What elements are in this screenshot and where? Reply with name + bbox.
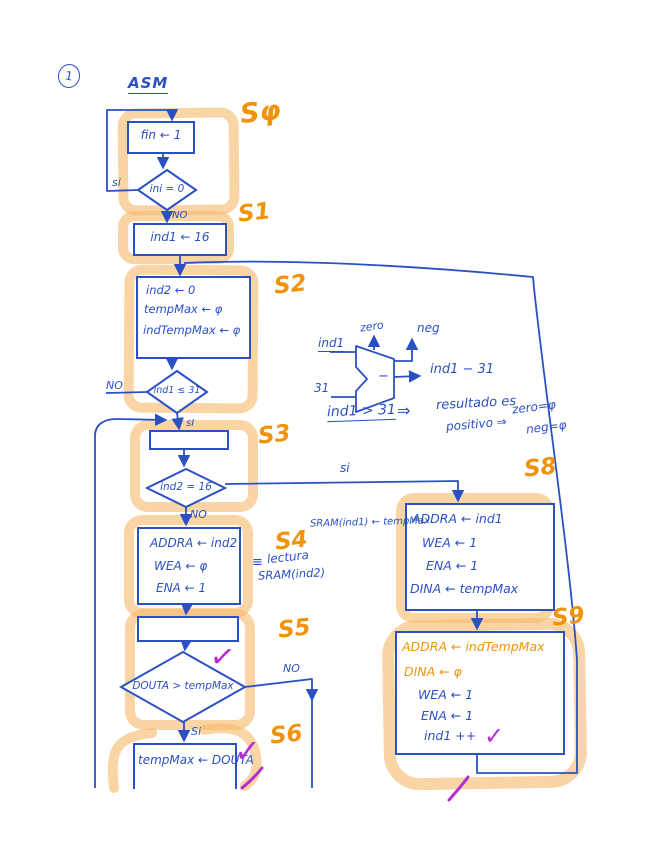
scanned-asm-flowchart-page: 1 ASM fin ← 1 ini = 0 ind1 ← 16 ind2 ← 0…: [0, 0, 648, 848]
s2-line-2: tempMax ← φ: [144, 303, 222, 316]
state-label-s9: S9: [551, 602, 586, 631]
edge-s5-to-doutacond: [185, 641, 186, 649]
state-label-s6: S6: [269, 720, 304, 749]
label-douta-si: Si: [191, 726, 201, 738]
page-title: ASM: [128, 75, 168, 94]
edge-s4-to-s5: [186, 604, 187, 613]
s3-condition-text: ind2 = 16: [147, 482, 225, 494]
s4-line-1: ADDRA ← ind2: [150, 537, 237, 550]
alu-neg-label: neg: [417, 322, 440, 335]
s2-condition-text: ind1 ≤ 31: [147, 386, 207, 396]
s5-condition-text: DOUTA > tempMax: [121, 681, 245, 693]
check-icon-s6: ✓: [234, 732, 261, 770]
label-ini-si: si: [112, 177, 121, 189]
state-label-s3: S3: [257, 420, 292, 449]
s8-line-2: WEA ← 1: [422, 536, 477, 550]
edge-douta-no-down: [245, 679, 312, 699]
state-label-s2: S2: [273, 270, 308, 299]
label-ind2-no: NO: [190, 509, 207, 521]
label-ind2-si: si: [340, 462, 350, 475]
state-label-s0: Sφ: [238, 95, 282, 130]
s4-line-2: WEA ← φ: [154, 560, 207, 573]
s8-line-4: DINA ← tempMax: [410, 582, 518, 596]
s9-line-3: WEA ← 1: [418, 688, 473, 702]
alu-result-label: ind1 − 31: [430, 363, 494, 377]
alu-neg-wire: [394, 340, 412, 361]
state-label-s8: S8: [523, 453, 558, 482]
box-s3-empty: [150, 431, 228, 449]
alu-eq-arrow: ⇒: [397, 402, 410, 420]
label-ind1-no: NO: [106, 380, 123, 392]
s4-line-3: ENA ← 1: [156, 582, 206, 595]
s2-line-1: ind2 ← 0: [146, 284, 195, 297]
alu-output-wire: [394, 376, 419, 377]
label-douta-no: NO: [283, 663, 300, 675]
s8-line-3: ENA ← 1: [426, 559, 478, 573]
box-s5-empty: [138, 617, 238, 641]
s0-action-text: fin ← 1: [128, 129, 194, 142]
label-ind1-si: sI: [186, 418, 194, 429]
check-icon-douta: ✓: [208, 638, 238, 676]
s9-line-2: DINA ← φ: [404, 665, 462, 679]
s9-line-5: ind1 ++: [424, 729, 476, 743]
alu-op-label: −: [378, 370, 389, 384]
s1-action-text: ind1 ← 16: [134, 231, 226, 244]
state-label-s1: S1: [237, 198, 272, 227]
alu-input-31-label: 31: [314, 382, 329, 395]
check-icon-s9: ✓: [484, 722, 504, 750]
alu-input-ind1-label: ind1: [318, 337, 344, 352]
alu-eq-lhs: ind1 > 31: [327, 403, 397, 423]
s0-condition-text: ini = 0: [138, 184, 196, 196]
label-ini-no: NO: [172, 210, 187, 221]
loop-ind1-no-join: [106, 392, 147, 393]
s2-line-3: indTempMax ← φ: [143, 324, 240, 337]
state-label-s5: S5: [277, 614, 312, 643]
s9-line-4: ENA ← 1: [421, 709, 473, 723]
s9-line-1: ADDRA ← indTempMax: [402, 640, 545, 654]
